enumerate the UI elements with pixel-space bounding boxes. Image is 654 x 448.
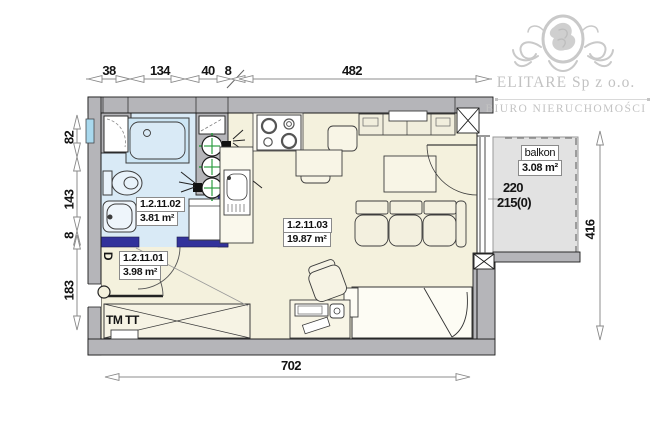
dim-top-38: 38: [97, 63, 121, 78]
sofa: [355, 201, 466, 247]
bed: [352, 287, 472, 338]
room-area: 3.98 m²: [119, 265, 161, 280]
desk-lamp: [330, 304, 344, 318]
floorplan-page: 38 134 40 8 482 82 143 8 183 416 702 1.2…: [0, 0, 654, 448]
desk: [290, 300, 350, 338]
meter-box: [199, 116, 225, 134]
balcony-name: balkon: [521, 145, 560, 161]
radiator-label: TM TT: [106, 313, 139, 327]
stove: [257, 115, 301, 150]
chair: [328, 126, 357, 151]
bathtub: [126, 118, 189, 163]
brand-company-name: ELITARE Sp z o.o.: [480, 74, 652, 92]
window-width-label: 220: [503, 180, 523, 195]
room-label-bathroom: 1.2.11.02 3.81 m²: [136, 197, 185, 226]
kitchen-sink: [224, 170, 250, 215]
dim-right-416: 416: [583, 212, 598, 248]
balcony-area: 3.08 m²: [518, 160, 562, 176]
room-area: 3.81 m²: [136, 211, 178, 226]
radiator: [111, 330, 138, 339]
room-id: 1.2.11.01: [119, 251, 168, 266]
room-label-hall: 1.2.11.01 3.98 m²: [119, 251, 168, 280]
window-sill-label: 215(0): [497, 195, 531, 210]
tv-unit: [359, 111, 455, 135]
balcony-label: balkon 3.08 m²: [518, 145, 562, 176]
balcony-window: [477, 136, 490, 254]
room-label-main: 1.2.11.03 19.87 m²: [283, 218, 332, 247]
room-area: 19.87 m²: [283, 232, 331, 247]
bathroom-sink: [103, 201, 136, 232]
dim-top-482: 482: [334, 63, 370, 78]
dim-bottom-702: 702: [273, 358, 309, 373]
dim-top-40: 40: [196, 63, 220, 78]
brand-tagline: BIURO NIERUCHOMOŚCI: [480, 103, 652, 115]
entry-niche-cabinet: [104, 116, 128, 152]
coffee-table: [384, 156, 436, 192]
door-letter-label: D: [101, 252, 115, 260]
dim-top-8: 8: [222, 63, 234, 78]
dim-left-143: 143: [62, 182, 77, 218]
table: [296, 150, 342, 176]
room-id: 1.2.11.03: [283, 218, 332, 233]
brand-divider: [497, 99, 648, 100]
dim-left-82: 82: [62, 120, 77, 156]
toilet: [103, 171, 142, 195]
logo-crest-icon: [513, 16, 613, 71]
washing-machine: [189, 199, 220, 240]
dim-top-134: 134: [142, 63, 178, 78]
room-id: 1.2.11.02: [136, 197, 185, 212]
dim-left-183: 183: [62, 273, 77, 309]
dim-left-8: 8: [62, 218, 77, 254]
bathroom-window: [86, 119, 94, 143]
